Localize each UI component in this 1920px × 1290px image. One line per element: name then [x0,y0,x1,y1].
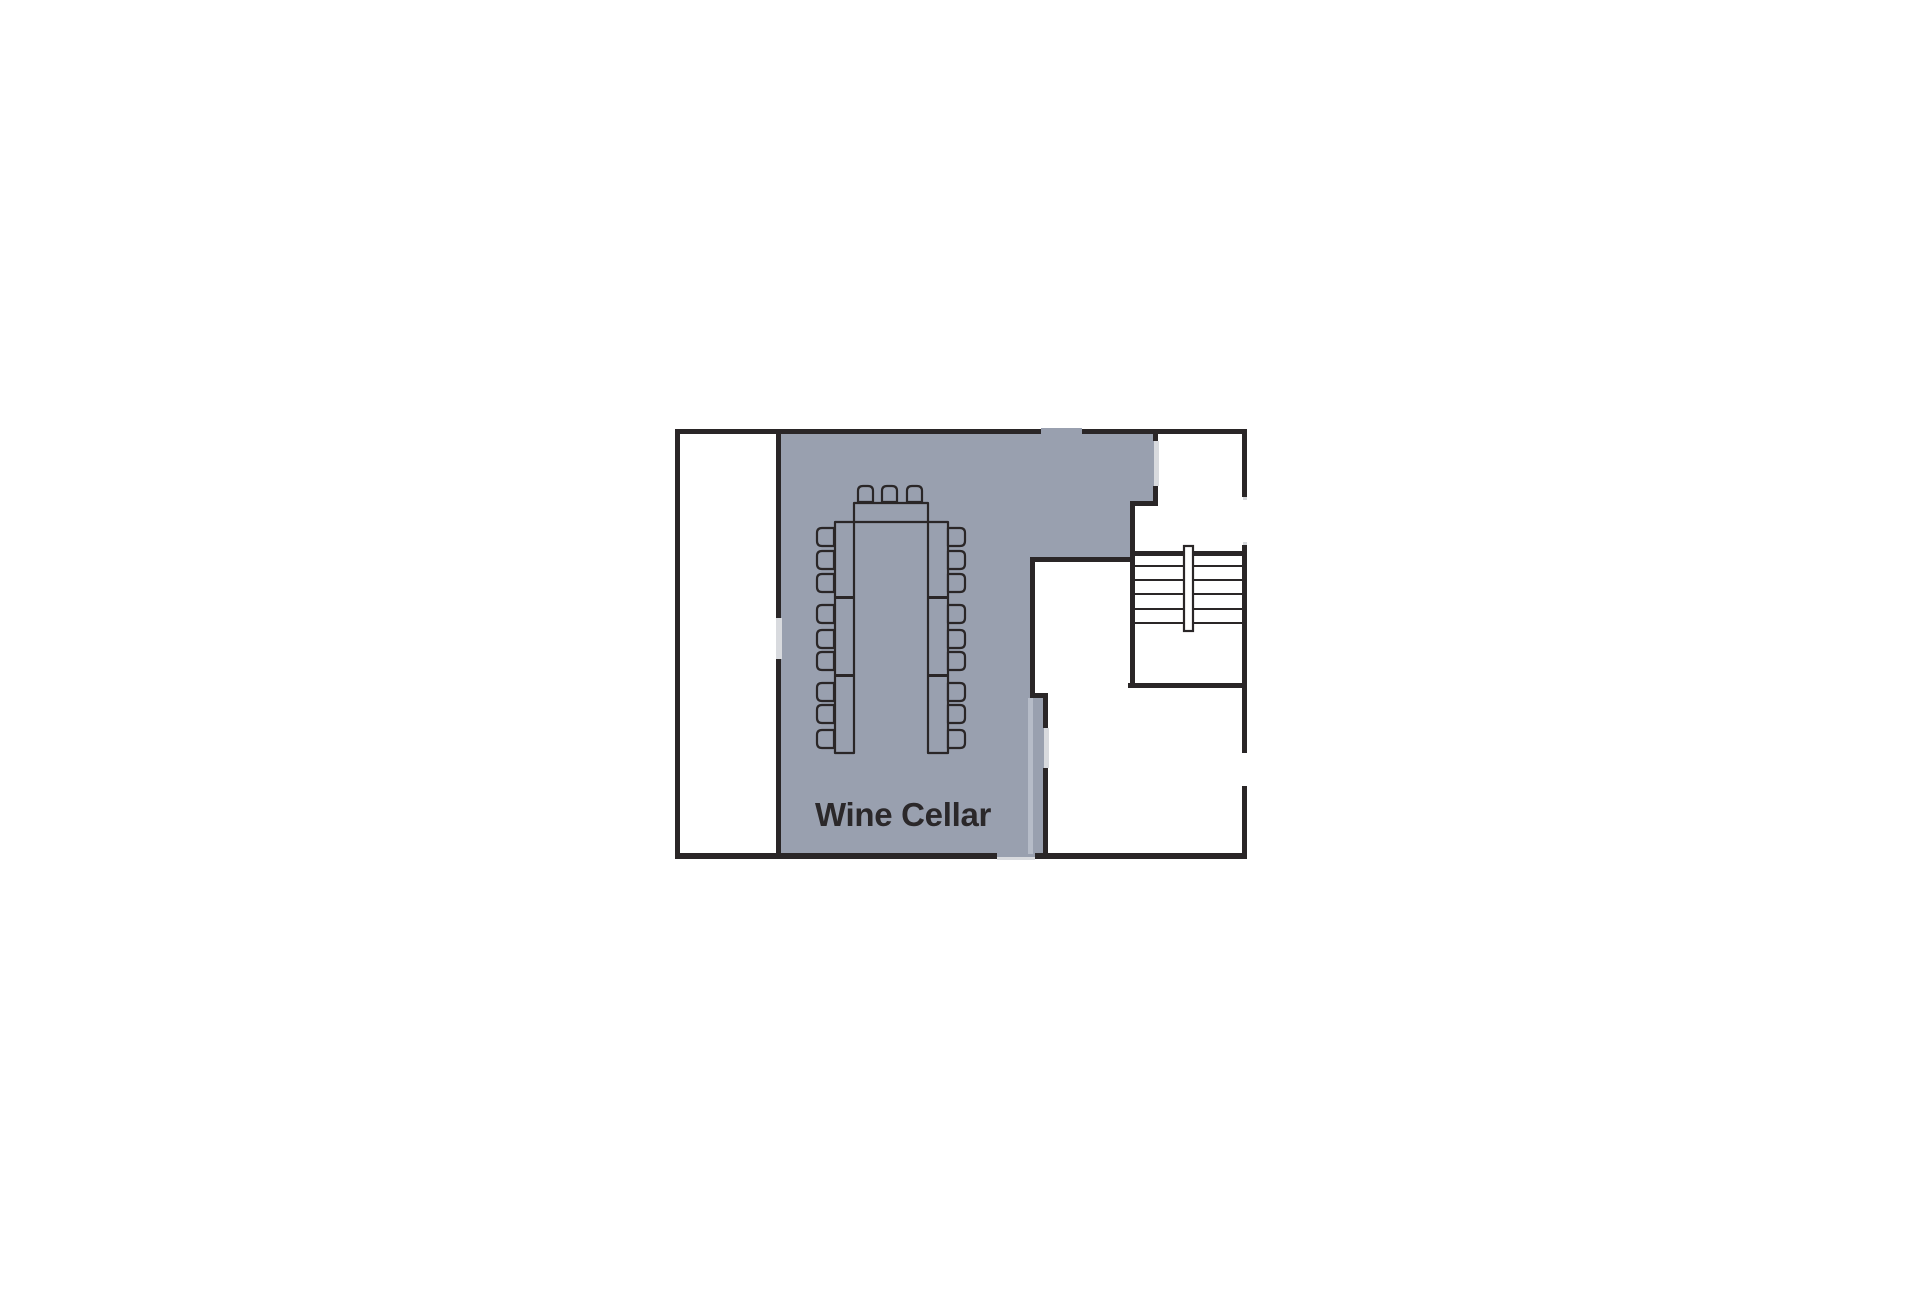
table-divider [835,674,854,677]
chair [882,486,897,502]
top-wall [1082,429,1247,434]
chair [948,705,965,723]
table-divider [928,674,948,677]
lower-room-left-wall [1043,768,1048,859]
chair [817,528,834,546]
table-left-run [835,522,854,753]
floor-plan: Wine Cellar [0,0,1920,1290]
left-door-opening [776,618,782,659]
chair [948,683,965,701]
interior-wall-left [776,659,781,859]
chair [817,683,834,701]
lower-right-door-opening [1044,728,1049,768]
right-wall-opening-nub-top [1243,497,1247,500]
bottom-door-opening [997,857,1035,860]
chair [817,551,834,569]
lower-room-left-wall [1030,557,1035,698]
chair [817,574,834,592]
chair [817,730,834,748]
chair [817,652,834,670]
top-door-fill [1041,428,1082,434]
partial-wall-line [1028,698,1033,854]
staircase [1135,546,1242,631]
right-wall-opening-nub-bottom [1243,542,1247,545]
chair [948,574,965,592]
top-wall [675,429,1041,434]
table-divider [835,596,854,599]
right-wall [1242,786,1247,859]
lower-room-left-wall [1043,693,1048,728]
stair-handrail [1184,546,1193,631]
interior-wall-left [776,429,781,618]
cellar-ne-stub [1153,434,1158,441]
chair [817,630,834,648]
room-label: Wine Cellar [815,796,992,833]
chair [948,630,965,648]
chair [817,705,834,723]
left-wall [675,429,680,859]
chair [948,528,965,546]
chair [948,551,965,569]
chair [858,486,873,502]
table-divider [928,596,948,599]
table-head [854,503,928,522]
chair [948,730,965,748]
stair-bottom-wall [1128,683,1247,688]
chair [948,605,965,623]
right-wall [1242,545,1247,753]
chair [907,486,922,502]
table-right-run [928,522,948,753]
upper-right-door-opening [1154,441,1159,486]
right-wall [1242,429,1247,497]
floor-plan-canvas: Wine Cellar [0,0,1920,1290]
lower-room-top-wall [1030,557,1135,562]
stair-left-wall [1130,501,1135,688]
bottom-wall [1035,853,1247,859]
chair [817,605,834,623]
bottom-wall [675,853,997,859]
chair [948,652,965,670]
